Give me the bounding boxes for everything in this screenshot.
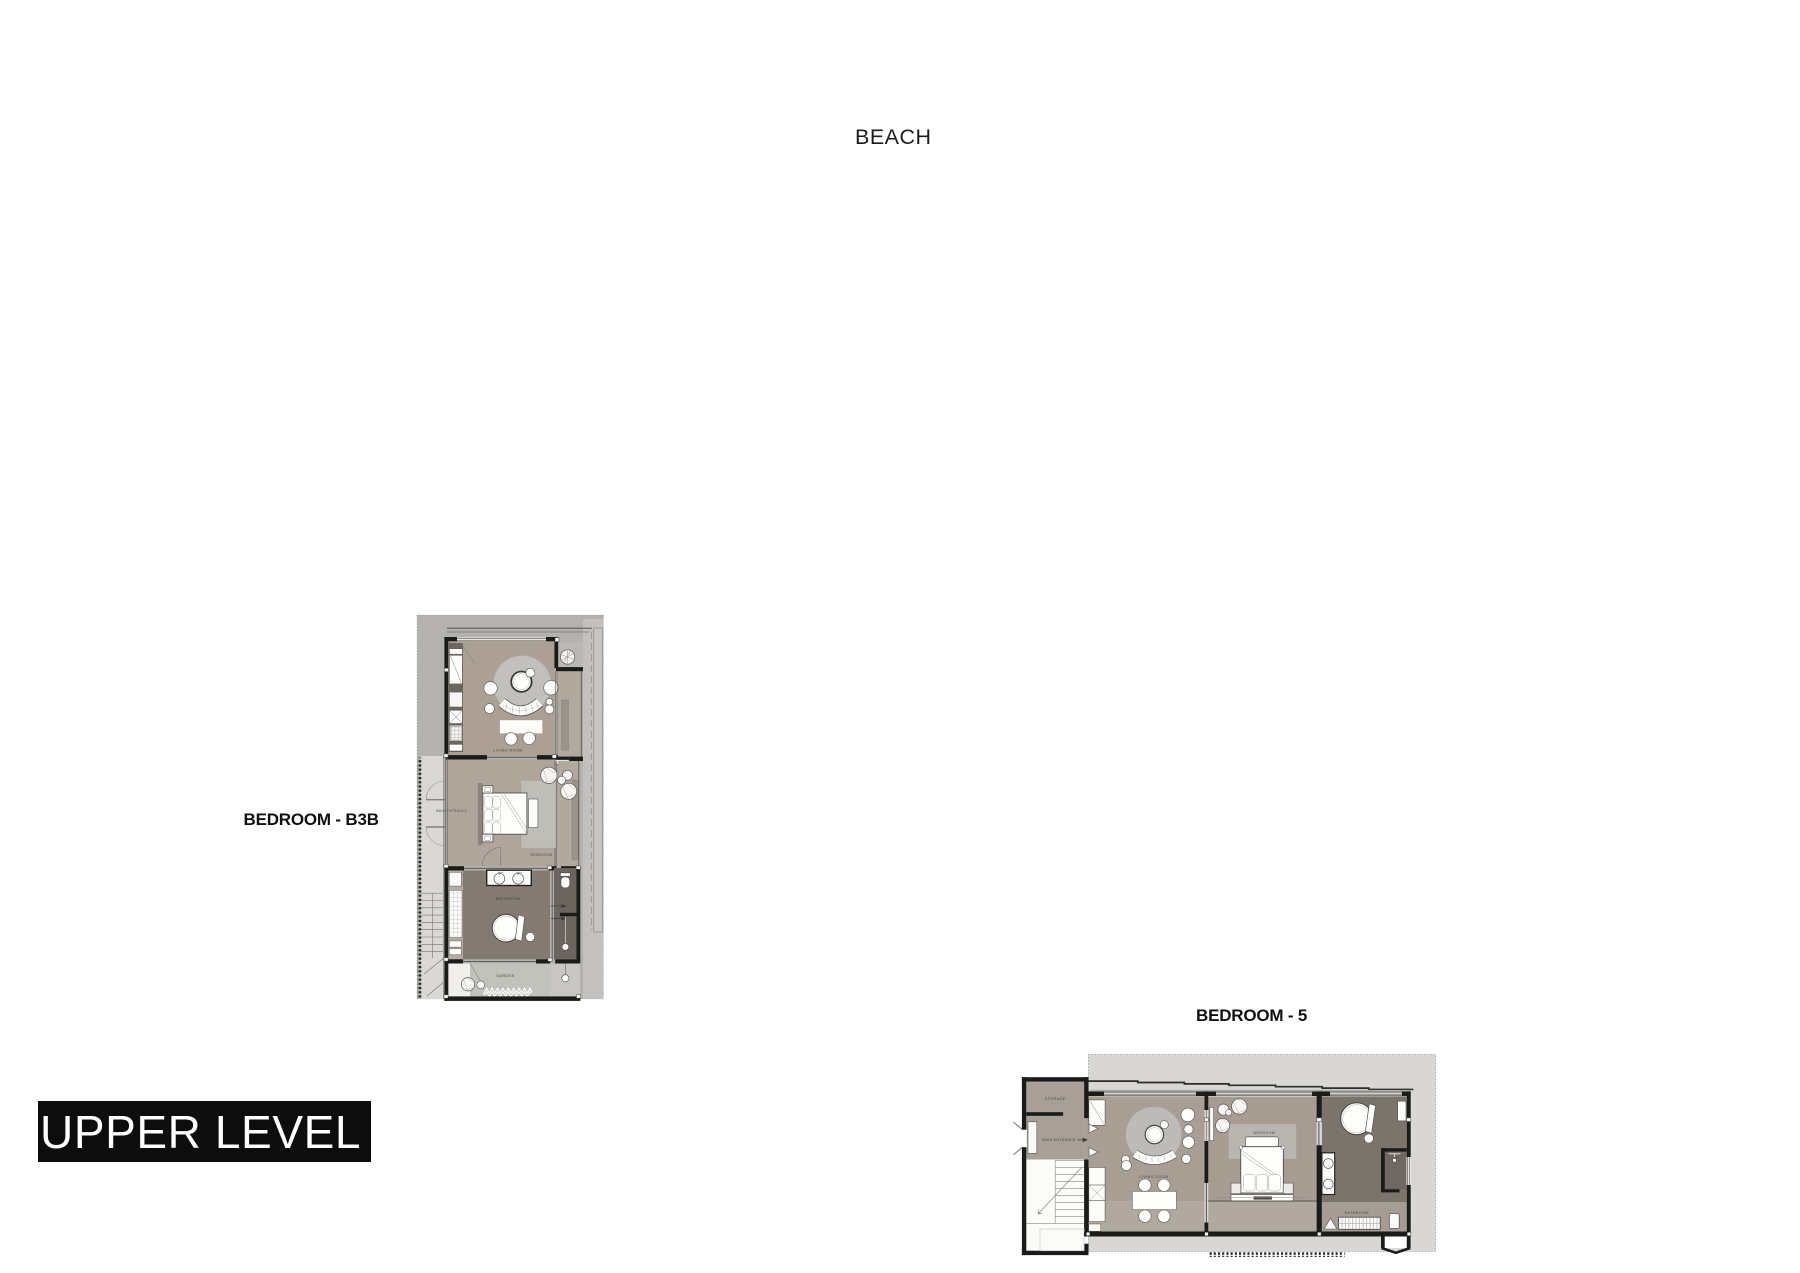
svg-text:LIVING ROOM: LIVING ROOM	[1140, 1175, 1169, 1179]
svg-text:GARDEN: GARDEN	[496, 974, 515, 978]
svg-text:BEDROOM: BEDROOM	[1253, 1131, 1275, 1135]
svg-text:MAIN ENTRANCE: MAIN ENTRANCE	[436, 809, 468, 813]
svg-text:MAIN ENTRANCE: MAIN ENTRANCE	[1042, 1138, 1076, 1142]
svg-text:BEDROOM: BEDROOM	[530, 853, 552, 857]
svg-text:BATHROOM: BATHROOM	[1345, 1211, 1369, 1215]
svg-text:LIVING ROOM: LIVING ROOM	[493, 748, 523, 752]
svg-text:BATHROOM: BATHROOM	[496, 897, 521, 901]
svg-text:STORAGE: STORAGE	[1045, 1097, 1066, 1101]
